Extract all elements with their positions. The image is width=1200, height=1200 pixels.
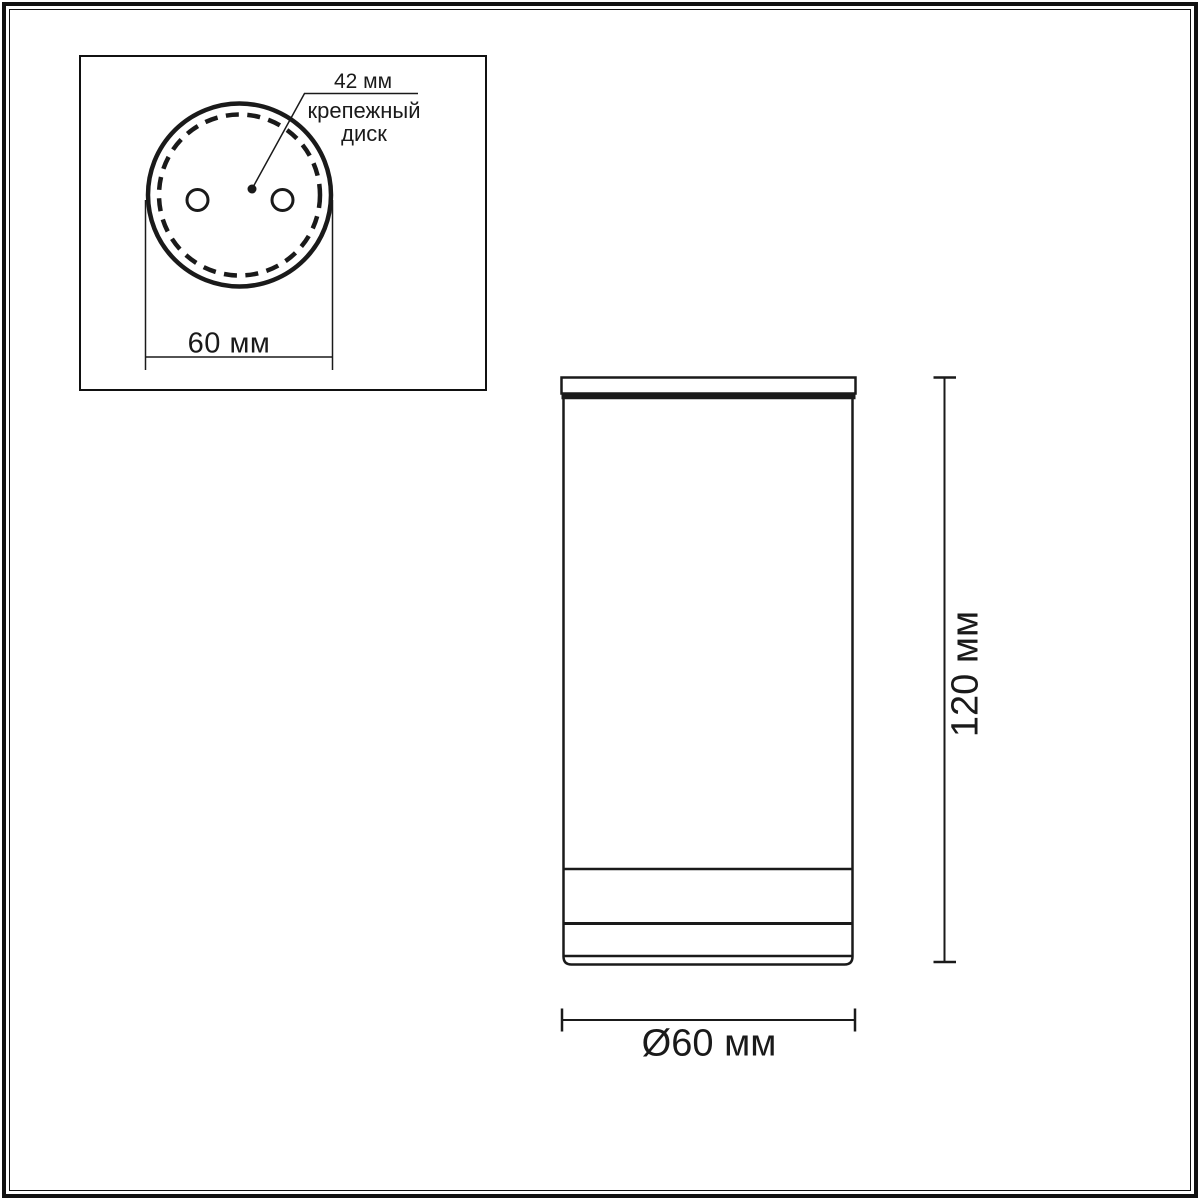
- mounting-disc-name-label: крепежный диск: [308, 99, 421, 145]
- mounting-disc-dashed-circle: [159, 115, 320, 276]
- top-view-outer-circle: [148, 104, 331, 287]
- height-dimension-label: 120 мм: [945, 611, 988, 737]
- cylinder-body-outline: [564, 399, 853, 965]
- screw-hole-left: [187, 190, 208, 211]
- drawing-artwork: [0, 0, 1200, 1200]
- diameter-dimension-label: Ø60 мм: [642, 1023, 777, 1066]
- screw-hole-right: [272, 190, 293, 211]
- mounting-disc-name-line2: диск: [308, 122, 421, 145]
- cylinder-top-cap: [562, 378, 856, 394]
- mounting-disc-diameter-label: 42 мм: [334, 70, 392, 94]
- mounting-disc-name-line1: крепежный: [308, 99, 421, 122]
- inset-housing-diameter-label: 60 мм: [188, 328, 271, 361]
- technical-drawing-page: { "colors": { "ink": "#1a1a1a", "frame":…: [0, 0, 1200, 1200]
